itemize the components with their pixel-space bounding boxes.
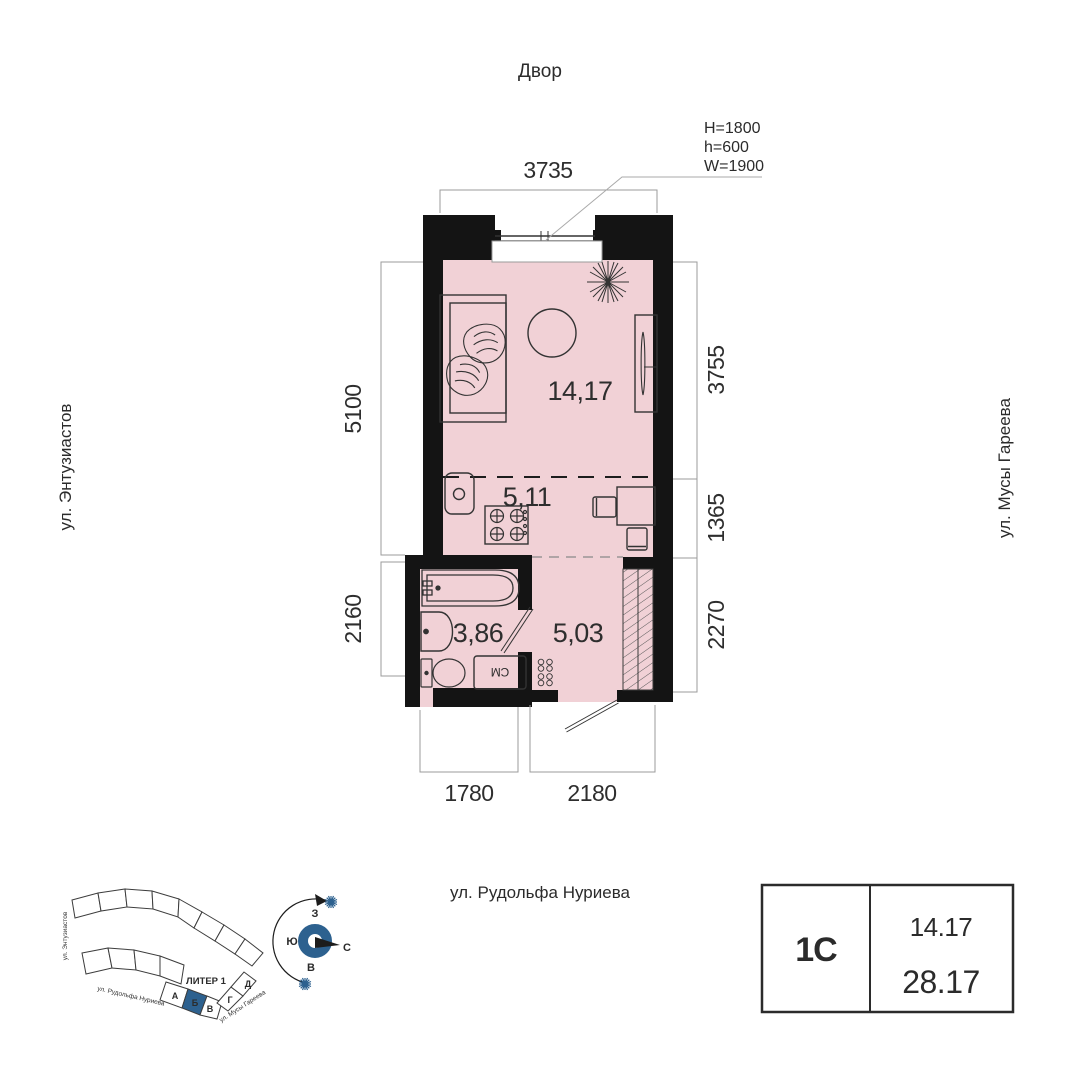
window-icon xyxy=(492,231,602,262)
sun-icon xyxy=(325,896,337,908)
dim-left-upper: 5100 xyxy=(340,384,366,433)
site-section-d: Д xyxy=(245,979,252,989)
courtyard-label: Двор xyxy=(518,61,562,82)
dim-left-lower: 2160 xyxy=(340,594,366,643)
site-plan: ЛИТЕР 1 А Б В Г Д ул. Энтузиастов ул. Ру… xyxy=(62,889,267,1024)
window-spec-H: H=1800 xyxy=(704,120,761,137)
area-bath: 3,86 xyxy=(453,618,504,648)
site-street-bottom: ул. Рудольфа Нуриева xyxy=(97,985,166,1007)
window-sill xyxy=(492,241,602,262)
compass-east: В xyxy=(307,962,315,974)
site-section-g: Г xyxy=(227,995,232,1005)
living-area-value: 14.17 xyxy=(910,912,973,942)
floor-plan-page: 3735 5100 2160 3755 1365 2270 1780 2180 … xyxy=(0,0,1080,1080)
total-area-value: 28.17 xyxy=(902,964,980,1000)
site-section-b: Б xyxy=(192,998,199,1008)
street-left: ул. Энтузиастов xyxy=(56,404,75,531)
dim-bottom-right: 2180 xyxy=(567,780,616,806)
dim-right-mid: 1365 xyxy=(703,493,729,542)
washer-label: СМ xyxy=(491,665,510,679)
site-liter-label: ЛИТЕР 1 xyxy=(186,976,227,987)
dim-top: 3735 xyxy=(523,157,572,183)
unit-type: 1С xyxy=(795,931,837,969)
area-hall: 5,03 xyxy=(553,618,604,648)
compass-south: Ю xyxy=(286,936,297,948)
sun-icon xyxy=(299,978,311,990)
floor-plan-drawing: 3735 5100 2160 3755 1365 2270 1780 2180 … xyxy=(0,0,1080,1080)
plant-icon xyxy=(587,261,629,303)
info-table: 1С 14.17 28.17 xyxy=(762,885,1013,1012)
window-spec-h: h=600 xyxy=(704,139,749,156)
site-building-west xyxy=(82,948,184,984)
dim-bottom-left: 1780 xyxy=(444,780,493,806)
compass-west: З xyxy=(312,908,319,920)
entrance-door-icon xyxy=(565,700,619,732)
wardrobe-icon xyxy=(623,569,653,690)
dim-right-upper: 3755 xyxy=(703,345,729,394)
area-kitchen: 5,11 xyxy=(503,482,552,512)
site-section-a: А xyxy=(172,991,179,1001)
area-living: 14,17 xyxy=(547,376,612,406)
site-section-v: В xyxy=(207,1004,214,1014)
compass-icon: З Ю С В xyxy=(273,894,351,990)
dim-right-lower: 2270 xyxy=(703,600,729,649)
street-right: ул. Мусы Гареева xyxy=(995,397,1014,538)
window-spec-W: W=1900 xyxy=(704,158,764,175)
site-street-left: ул. Энтузиастов xyxy=(62,911,69,960)
compass-north: С xyxy=(343,942,351,954)
street-bottom: ул. Рудольфа Нуриева xyxy=(450,883,631,902)
